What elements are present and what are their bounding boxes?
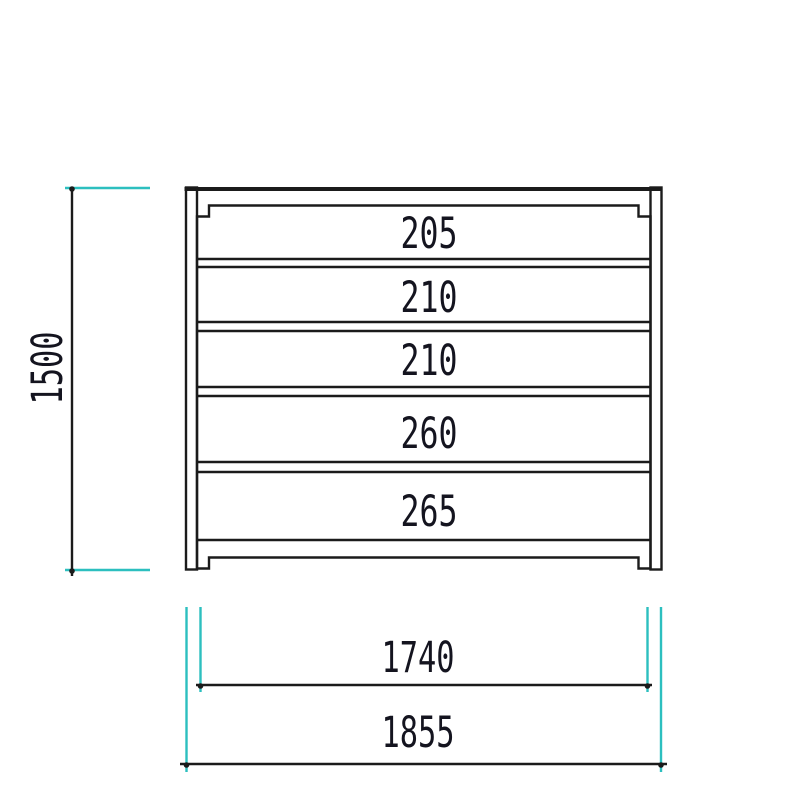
- inner-width-dimension: 1740: [196, 607, 652, 692]
- row-height-label: 210: [401, 273, 458, 323]
- outer-width-dimension: 1855: [180, 607, 667, 772]
- overall-width-dimension-label: 1855: [382, 708, 455, 758]
- shelf-divider: [197, 462, 651, 472]
- dimension-end-dot: [69, 568, 75, 574]
- height-dimension: 1500: [23, 186, 150, 576]
- height-dimension-label: 1500: [23, 332, 73, 405]
- shelving-elevation-drawing: 205 210 210 260 265 1500 1740: [0, 0, 800, 800]
- dimension-end-dot: [198, 683, 204, 689]
- dimension-end-dot: [645, 683, 651, 689]
- row-height-label: 260: [401, 409, 458, 459]
- left-post: [186, 188, 197, 570]
- shelf-row-labels: 205 210 210 260 265: [401, 209, 458, 537]
- row-height-label: 265: [401, 487, 458, 537]
- row-height-label: 210: [401, 336, 458, 386]
- dimension-end-dot: [184, 762, 190, 768]
- right-post: [651, 188, 662, 570]
- row-height-label: 205: [401, 209, 458, 259]
- shelf-divider: [197, 322, 651, 331]
- inner-width-dimension-label: 1740: [382, 633, 455, 683]
- shelf-divider: [197, 387, 651, 396]
- dimension-end-dot: [69, 186, 75, 192]
- dimension-end-dot: [658, 762, 664, 768]
- drawing-canvas: 205 210 210 260 265 1500 1740: [0, 0, 800, 800]
- shelf-divider: [197, 259, 651, 267]
